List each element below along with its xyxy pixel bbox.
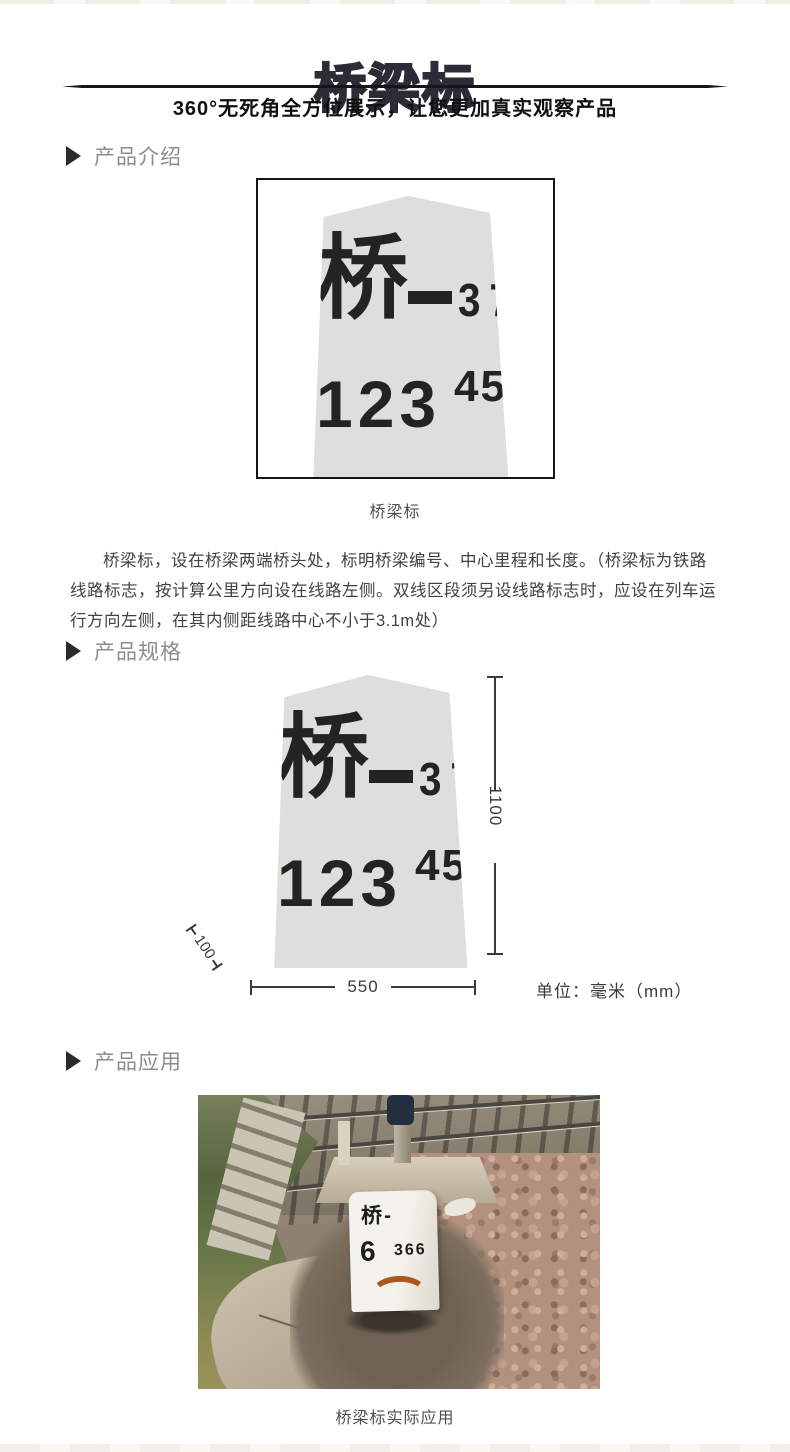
bridge-marker-illustration: 桥 - 37 123 456 — [294, 193, 522, 477]
photo-marker-number-small: 366 — [394, 1242, 427, 1259]
product-description: 桥梁标，设在桥梁两端桥头处，标明桥梁编号、中心里程和长度。（桥梁标为铁路线路标志… — [70, 546, 722, 636]
spec-diagram-marker: 桥 - 37 123 456 — [255, 672, 481, 968]
unit-label: 单位：毫米（mm） — [536, 977, 692, 1002]
marker-face-serial: 37 — [419, 756, 482, 802]
dimension-width-label: 550 — [335, 977, 390, 997]
application-photo-caption: 桥梁标实际应用 — [0, 1404, 790, 1428]
section-label-application: 产品应用 — [94, 1046, 182, 1076]
dimension-width: 550 — [250, 979, 476, 995]
photo-bridge-marker-stone: 桥- 6 366 — [348, 1190, 439, 1312]
dimension-height: 1100 — [486, 676, 504, 955]
triangle-bullet-icon — [66, 641, 81, 661]
triangle-bullet-icon — [66, 146, 81, 166]
top-crop-strip — [0, 0, 790, 4]
intro-figure-caption: 桥梁标 — [0, 498, 790, 522]
dimension-line — [252, 986, 335, 988]
dimension-tick — [208, 957, 223, 971]
section-label-intro: 产品介绍 — [94, 141, 182, 171]
photo-white-post — [338, 1121, 350, 1165]
dimension-tick — [474, 980, 476, 995]
section-label-spec: 产品规格 — [94, 636, 182, 666]
marker-face-dash: - — [369, 770, 413, 783]
marker-face-character: 桥 — [316, 233, 408, 325]
section-header-intro: 产品介绍 — [66, 141, 182, 171]
intro-product-figure: 桥 - 37 123 456 — [256, 178, 555, 479]
dimension-line — [494, 678, 496, 790]
marker-face-dash: - — [408, 291, 452, 304]
photo-marker-text-top: 桥- — [361, 1199, 394, 1230]
application-photo: 桥- 6 366 — [198, 1095, 600, 1389]
dimension-base-depth: 100 — [184, 922, 226, 972]
page-subtitle: 360°无死角全方位展示，让您更加真实观察产品 — [0, 92, 790, 121]
marker-face-mileage-sup: 456 — [415, 844, 494, 888]
marker-face-character: 桥 — [277, 712, 369, 804]
photo-marker-number: 6 — [360, 1237, 376, 1265]
bottom-crop-strip — [0, 1444, 790, 1452]
marker-face-mileage-sup: 456 — [454, 365, 533, 409]
dimension-line — [391, 986, 474, 988]
marker-face-mileage: 123 — [277, 850, 402, 916]
photo-signal-head — [387, 1095, 414, 1125]
marker-face-serial: 37 — [458, 277, 521, 323]
product-detail-page: 桥梁标 360°无死角全方位展示，让您更加真实观察产品 产品介绍 桥 - 37 … — [0, 0, 790, 1452]
photo-marker-rust-stain — [371, 1275, 428, 1311]
section-header-application: 产品应用 — [66, 1046, 182, 1076]
marker-face-mileage: 123 — [316, 371, 441, 437]
dimension-tick — [487, 953, 503, 955]
dimension-height-label: 1100 — [485, 783, 505, 829]
dimension-line — [494, 863, 496, 953]
triangle-bullet-icon — [66, 1051, 81, 1071]
section-header-spec: 产品规格 — [66, 636, 182, 666]
title-divider — [62, 85, 728, 88]
